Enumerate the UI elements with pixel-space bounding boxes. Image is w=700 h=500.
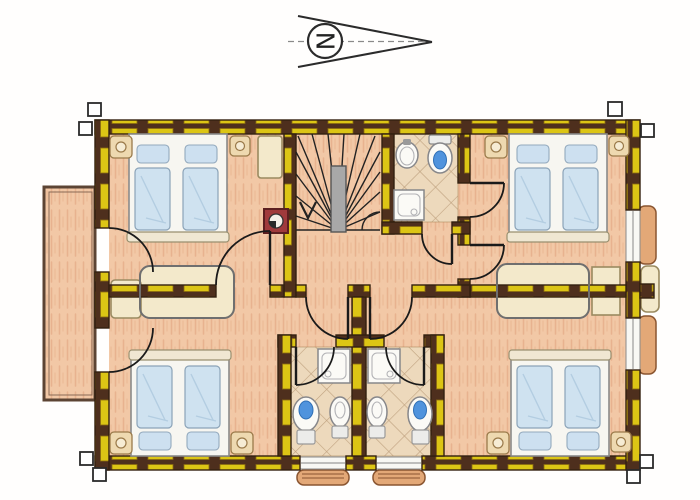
- pillow: [187, 432, 219, 450]
- log-mark-bl-a: [80, 452, 93, 465]
- bed-footboard: [507, 232, 609, 242]
- lamp: [491, 142, 501, 152]
- wall-exterior-bottom-1: [95, 456, 300, 470]
- pillow: [567, 432, 599, 450]
- washbasin-tap: [403, 139, 411, 145]
- bidet-base: [332, 426, 348, 438]
- log-mark-br-b: [627, 470, 640, 483]
- wall-exterior-left-2: [95, 272, 109, 328]
- bidet-base: [369, 426, 385, 438]
- toilet-base: [412, 430, 429, 444]
- wall-exterior-bottom-2: [346, 456, 376, 470]
- bed-footboard: [509, 350, 611, 360]
- wall-right-divider: [470, 285, 626, 297]
- toilet-water: [299, 401, 313, 419]
- pillow: [519, 432, 551, 450]
- wall-exterior-bottom-3: [422, 456, 640, 470]
- shower-tray: [368, 349, 400, 383]
- log-mark-tr-b: [641, 124, 654, 137]
- wall-bathroom-top-south-2: [452, 222, 470, 234]
- wall-center-2: [348, 285, 370, 297]
- wall-exterior-right-1: [626, 120, 640, 210]
- lamp: [116, 438, 126, 448]
- chimney: [264, 209, 288, 233]
- log-mark-bl-b: [93, 468, 106, 481]
- floor-plan-svg: N: [0, 0, 700, 500]
- wall-bathroom-top-south-1: [382, 222, 422, 234]
- balcony-floor: [44, 187, 95, 400]
- wall-left-divider-1: [109, 285, 216, 297]
- wall-left-divider-2: [270, 285, 284, 297]
- lamp: [116, 142, 126, 152]
- lamp: [493, 438, 503, 448]
- log-mark-right-joint: [640, 284, 654, 298]
- wall-center-3: [412, 285, 470, 297]
- north-letter: N: [311, 32, 340, 51]
- wall-bedroom-tr-west-1: [458, 134, 470, 183]
- pillow: [185, 145, 217, 163]
- lamp: [236, 142, 245, 151]
- washbasin: [396, 142, 418, 168]
- log-mark-tr-a: [608, 102, 622, 116]
- north-arrow: N: [288, 16, 432, 67]
- pillow: [139, 432, 171, 450]
- lamp: [617, 438, 626, 447]
- wall-center-1: [296, 285, 306, 297]
- stair-newel: [331, 166, 346, 232]
- toilet-base: [297, 430, 315, 444]
- log-mark-tl-a: [88, 103, 101, 116]
- wall-bathrooms-east: [431, 335, 444, 456]
- pillow: [137, 145, 169, 163]
- wall-bathroom-top-west: [382, 134, 394, 234]
- log-mark-br-a: [640, 455, 653, 468]
- wall-bathrooms-north-2: [336, 335, 384, 347]
- wardrobe: [258, 136, 282, 178]
- wall-exterior-right-2: [626, 262, 640, 318]
- floor-plan-scan: N: [0, 0, 700, 500]
- pillow: [517, 145, 549, 163]
- wall-bathrooms-divider: [352, 297, 366, 456]
- wall-exterior-right-3: [626, 370, 640, 470]
- window-box-right-upper: [638, 206, 656, 264]
- toilet-water: [414, 401, 427, 419]
- wall-exterior-top: [95, 120, 640, 134]
- wall-exterior-left-1: [95, 120, 109, 228]
- log-mark-tl-b: [79, 122, 92, 135]
- bed-footboard: [127, 232, 229, 242]
- balcony: [44, 187, 95, 400]
- toilet-water: [434, 151, 447, 169]
- lamp: [237, 438, 247, 448]
- lamp: [615, 142, 624, 151]
- wall-bathrooms-west: [278, 335, 291, 456]
- pillow: [565, 145, 597, 163]
- window-box-right-lower: [638, 316, 656, 374]
- wall-exterior-left-3: [95, 372, 109, 470]
